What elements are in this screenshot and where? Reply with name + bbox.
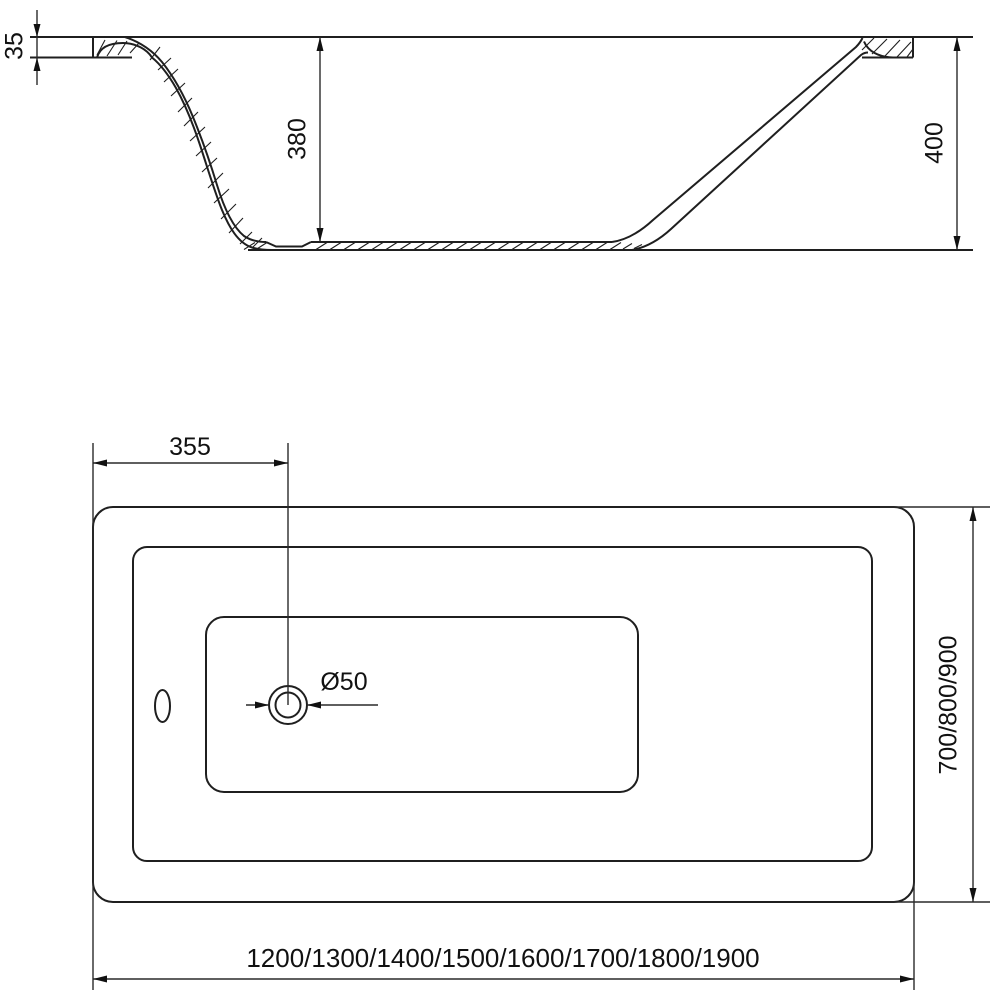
- floor-drain-recess: [266, 242, 311, 247]
- drawing-canvas: 35 380 400: [0, 0, 1000, 1000]
- dim-width-options: 700/800/900: [935, 507, 977, 902]
- side-view: 35 380 400: [1, 10, 973, 250]
- tub-outer-rect: [93, 507, 914, 902]
- arrowhead-up: [34, 58, 41, 72]
- left-wall-inner-edge: [125, 37, 266, 242]
- tub-floor-rect: [206, 617, 638, 792]
- arrowhead-down: [954, 236, 961, 250]
- dim-drain-diameter-label: Ø50: [320, 668, 367, 696]
- dim-length-options: 1200/1300/1400/1500/1600/1700/1800/1900: [93, 943, 914, 983]
- arrowhead-right: [255, 702, 269, 709]
- backrest-outer-edge: [632, 53, 868, 251]
- dim-total-height: 400: [921, 37, 961, 250]
- tub-rim-inner-rect: [133, 547, 872, 861]
- arrowhead-up: [954, 37, 961, 51]
- dim-400-label: 400: [921, 122, 949, 164]
- arrowhead-down: [317, 228, 324, 242]
- arrowhead-right: [900, 976, 914, 983]
- left-wall-outer-edge: [152, 58, 272, 251]
- dim-drain-offset: 355: [93, 433, 288, 467]
- left-rim-outline: [30, 37, 132, 58]
- dim-drain-diameter: Ø50: [246, 668, 378, 709]
- arrowhead-up: [317, 37, 324, 51]
- arrowhead-down: [970, 888, 977, 902]
- right-rim-hatching: [862, 38, 913, 57]
- plan-view: 355 Ø50 700/800/900 1200/1300/1400/1500/…: [93, 433, 990, 990]
- arrowhead-right: [274, 460, 288, 467]
- overflow-hole: [155, 690, 170, 722]
- arrowhead-left: [93, 460, 107, 467]
- left-wall-hatching: [97, 40, 262, 248]
- arrowhead-left: [307, 702, 321, 709]
- dim-inner-depth: 380: [284, 37, 324, 242]
- arrowhead-down: [34, 24, 41, 37]
- dim-width-options-label: 700/800/900: [935, 635, 963, 774]
- dim-rim-thickness: 35: [1, 10, 41, 85]
- dim-length-options-label: 1200/1300/1400/1500/1600/1700/1800/1900: [246, 943, 759, 973]
- dim-355-label: 355: [169, 433, 211, 461]
- arrowhead-up: [970, 507, 977, 521]
- dim-35-label: 35: [1, 32, 29, 60]
- arrowhead-left: [93, 976, 107, 983]
- backrest-inner-edge: [612, 38, 863, 242]
- bathtub-technical-drawing: 35 380 400: [0, 0, 1000, 1000]
- dim-380-label: 380: [284, 118, 312, 160]
